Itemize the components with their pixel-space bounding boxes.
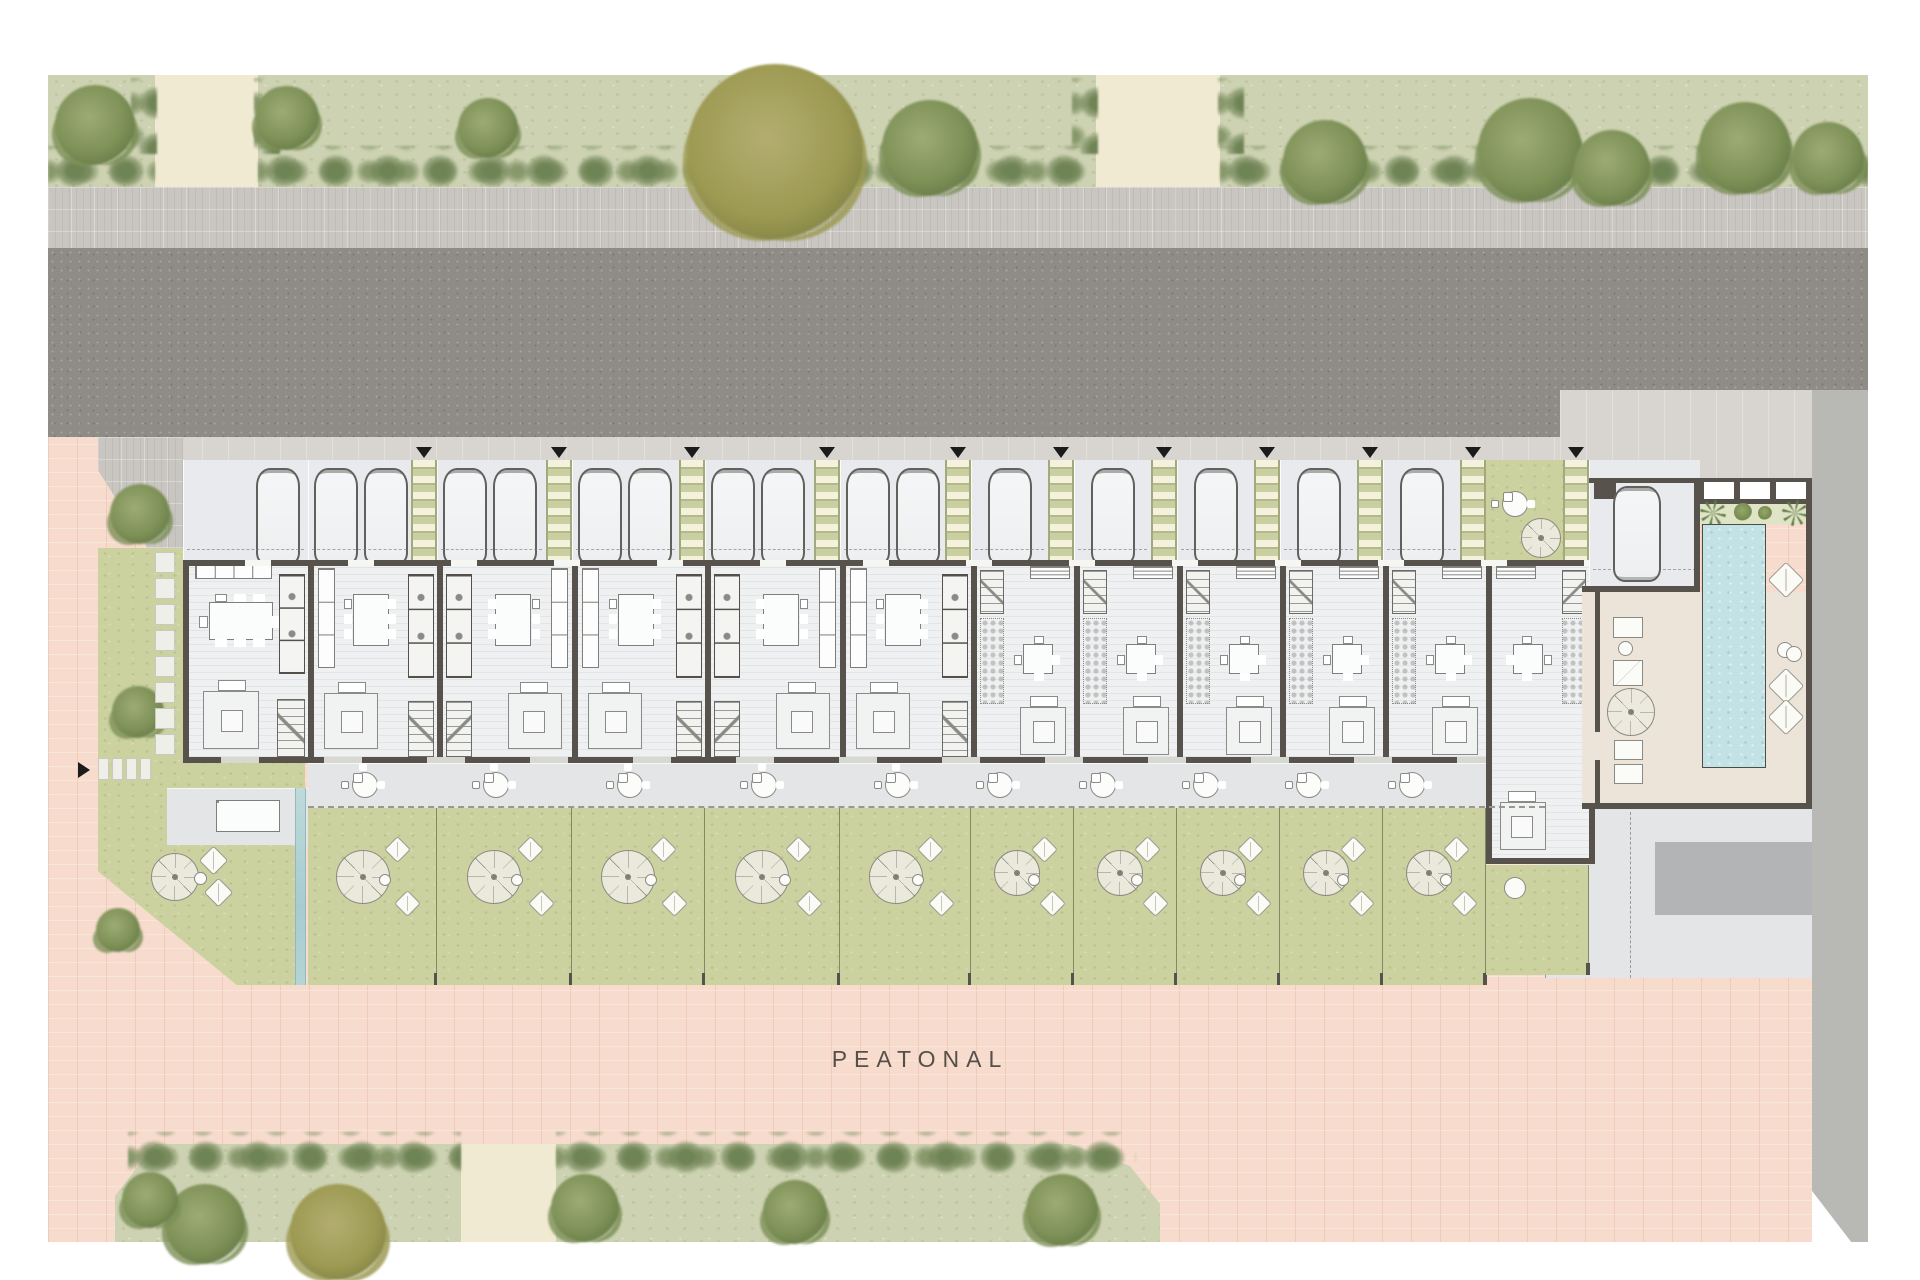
unit-garden bbox=[840, 808, 971, 985]
car-icon bbox=[578, 468, 622, 566]
sofa-icon bbox=[588, 693, 642, 749]
unit-garden bbox=[1177, 808, 1280, 985]
sun-lounger bbox=[1614, 764, 1643, 784]
sofa-icon bbox=[1226, 707, 1272, 755]
kitchen-counter bbox=[1339, 566, 1379, 579]
window-pane bbox=[1776, 482, 1806, 499]
unit-garden bbox=[1280, 808, 1383, 985]
unit-interior bbox=[971, 560, 1074, 763]
chair-icon bbox=[1034, 636, 1044, 644]
parking-bay bbox=[705, 460, 814, 572]
tree-icon bbox=[763, 1180, 827, 1244]
chair-icon bbox=[1137, 636, 1147, 644]
parking-bay bbox=[308, 460, 411, 572]
entry-marker-icon bbox=[1465, 447, 1481, 458]
unit-interior bbox=[1383, 560, 1486, 763]
unit-terrace bbox=[705, 763, 840, 808]
parking-bay bbox=[1383, 460, 1460, 572]
dining-table-icon bbox=[1513, 644, 1543, 674]
palm-icon bbox=[1782, 500, 1808, 526]
bathroom-core bbox=[408, 574, 434, 678]
terrace-table-icon bbox=[1193, 772, 1219, 798]
townhouse-unit bbox=[705, 437, 840, 985]
sun-lounger bbox=[1613, 660, 1643, 686]
unit-garden bbox=[705, 808, 840, 985]
tree-icon bbox=[1792, 122, 1864, 194]
unit-interior bbox=[1177, 560, 1280, 763]
sofa-icon bbox=[324, 693, 378, 749]
dining-table-icon bbox=[1229, 644, 1259, 674]
bathroom-core bbox=[1186, 618, 1210, 704]
shrub-icon bbox=[1734, 503, 1752, 521]
entry-marker-icon bbox=[819, 447, 835, 458]
kitchen-counter bbox=[850, 568, 867, 668]
unit-garden bbox=[572, 808, 705, 985]
deck-chair bbox=[1618, 641, 1633, 656]
south-hedge-row-2 bbox=[556, 1132, 1136, 1178]
tree-icon bbox=[96, 908, 140, 952]
parking-bay bbox=[971, 460, 1048, 572]
stepping-stone bbox=[155, 630, 175, 651]
chair-icon bbox=[1323, 655, 1331, 665]
stairs-icon bbox=[446, 701, 472, 757]
stepping-stone bbox=[98, 758, 109, 780]
chair-icon bbox=[1285, 781, 1293, 789]
north-hedge-gap-edge bbox=[1072, 78, 1098, 154]
dining-table-icon bbox=[1332, 644, 1362, 674]
garden-parasol-icon bbox=[1200, 850, 1246, 896]
north-path-gap-1 bbox=[155, 75, 258, 188]
garden-cushion bbox=[1348, 890, 1375, 917]
stepping-stone bbox=[140, 758, 151, 780]
kitchen-counter bbox=[195, 565, 272, 579]
bathroom-core bbox=[1392, 618, 1416, 704]
unit-interior bbox=[437, 560, 572, 763]
garden-cushion bbox=[650, 836, 677, 863]
parking-bay bbox=[183, 460, 308, 572]
pool-deck-south-wall bbox=[1582, 803, 1812, 809]
garden-cushion bbox=[928, 890, 955, 917]
car-icon bbox=[314, 468, 358, 566]
margin-left bbox=[0, 0, 48, 1280]
pool-deck-west-wall bbox=[1595, 592, 1600, 732]
garden-side-table bbox=[1234, 874, 1246, 886]
stepping-stone bbox=[155, 734, 175, 755]
garden-side-table bbox=[379, 874, 391, 886]
bathroom-core bbox=[714, 574, 740, 678]
car-icon bbox=[1194, 468, 1238, 566]
garden-side-table bbox=[511, 874, 523, 886]
terrace-table-icon bbox=[1296, 772, 1322, 798]
south-path-gap bbox=[461, 1144, 556, 1242]
unit-terrace bbox=[572, 763, 705, 808]
garden-side-table bbox=[779, 874, 791, 886]
chair-icon bbox=[341, 781, 349, 789]
parking-bay bbox=[572, 460, 679, 572]
garden-cushion bbox=[1245, 890, 1272, 917]
unit-garden bbox=[1486, 865, 1589, 975]
stepping-stone bbox=[155, 708, 175, 729]
kitchen-counter bbox=[819, 568, 836, 668]
garden-parasol-icon bbox=[1406, 850, 1452, 896]
stepping-stone bbox=[155, 604, 175, 625]
tree-icon bbox=[1283, 120, 1367, 204]
deck-parasol-icon bbox=[1607, 688, 1655, 736]
entry-marker-icon bbox=[416, 447, 432, 458]
townhouse-unit bbox=[971, 437, 1074, 985]
garden-side-table bbox=[1131, 874, 1143, 886]
sofa-icon bbox=[1432, 707, 1478, 755]
entry-marker-icon bbox=[684, 447, 700, 458]
unit-interior bbox=[840, 560, 971, 763]
chair-icon bbox=[874, 781, 882, 789]
unit-terrace bbox=[1177, 763, 1280, 808]
garden-table-icon bbox=[1502, 491, 1528, 517]
pedestrian-street-label: PEATONAL bbox=[830, 1046, 1010, 1073]
townhouse-unit bbox=[308, 437, 437, 985]
townhouse-unit bbox=[1074, 437, 1177, 985]
tree-icon bbox=[687, 64, 863, 240]
south-hedge-row-1 bbox=[128, 1132, 461, 1178]
tree-icon bbox=[290, 1184, 386, 1280]
unit-garden bbox=[437, 808, 572, 985]
unit-interior bbox=[308, 560, 437, 763]
north-hedge-gap-edge bbox=[1218, 78, 1244, 154]
tree-icon bbox=[55, 85, 135, 165]
tree-icon bbox=[1478, 98, 1582, 202]
sofa-icon bbox=[776, 693, 830, 749]
garden-cushion bbox=[661, 890, 688, 917]
building-south-wall bbox=[183, 757, 1486, 763]
car-icon bbox=[896, 468, 940, 566]
unit-garden bbox=[1074, 808, 1177, 985]
unit12-south-wall bbox=[1486, 858, 1595, 864]
chair-icon bbox=[344, 599, 352, 609]
chair-icon bbox=[1220, 655, 1228, 665]
margin-right bbox=[1868, 0, 1920, 1280]
townhouse-unit bbox=[1177, 437, 1280, 985]
entry-marker-icon bbox=[950, 447, 966, 458]
unit-terrace bbox=[1383, 763, 1486, 808]
stairs-icon bbox=[408, 701, 434, 757]
unit-terrace bbox=[840, 763, 971, 808]
chair-icon bbox=[472, 781, 480, 789]
window-pane bbox=[1740, 482, 1770, 499]
car-icon bbox=[761, 468, 805, 566]
garden-side-table bbox=[1337, 874, 1349, 886]
chair-icon bbox=[1522, 636, 1532, 644]
chair-icon bbox=[199, 616, 208, 628]
car-icon bbox=[711, 468, 755, 566]
dining-table-icon bbox=[1435, 644, 1465, 674]
site-plan-canvas: PEATONAL bbox=[0, 0, 1920, 1280]
margin-bottom bbox=[0, 1242, 1920, 1280]
tree-icon bbox=[1574, 130, 1650, 206]
unit-terrace bbox=[437, 763, 572, 808]
shrub-icon bbox=[1758, 506, 1772, 520]
kitchen-counter bbox=[1496, 566, 1536, 579]
unit-interior bbox=[1280, 560, 1383, 763]
terrace-table-icon bbox=[1399, 772, 1425, 798]
entry-marker-icon bbox=[1362, 447, 1378, 458]
terrace-table-icon bbox=[483, 772, 509, 798]
garden-side-table bbox=[912, 874, 924, 886]
chair-icon bbox=[1388, 781, 1396, 789]
garden-cushion bbox=[1451, 890, 1478, 917]
stepping-stone bbox=[112, 758, 123, 780]
terrace-table-icon bbox=[751, 772, 777, 798]
dining-table-icon bbox=[495, 594, 531, 646]
sofa-icon bbox=[1020, 707, 1066, 755]
garden-parasol-icon bbox=[1097, 850, 1143, 896]
car-icon bbox=[364, 468, 408, 566]
tree-icon bbox=[110, 484, 170, 544]
sun-lounger bbox=[1614, 740, 1643, 760]
unit-interior bbox=[183, 560, 308, 763]
garden-dashed-line bbox=[308, 806, 1545, 808]
kitchen-counter bbox=[1236, 566, 1276, 579]
garden-cushion bbox=[1039, 890, 1066, 917]
tree-icon bbox=[882, 100, 978, 196]
townhouse-unit bbox=[1383, 437, 1486, 985]
stepping-stone bbox=[155, 682, 175, 703]
tree-icon bbox=[1699, 102, 1791, 194]
car-icon bbox=[628, 468, 672, 566]
car-icon bbox=[988, 468, 1032, 566]
chair-icon bbox=[532, 599, 540, 609]
townhouse-unit bbox=[572, 437, 705, 985]
dining-table-icon bbox=[209, 602, 273, 640]
garden-cushion bbox=[517, 836, 544, 863]
unit-terrace bbox=[971, 763, 1074, 808]
stairs-icon bbox=[1392, 570, 1416, 614]
garden-side-table bbox=[1028, 874, 1040, 886]
sofa-icon bbox=[1500, 802, 1546, 850]
window-pane bbox=[1704, 482, 1734, 499]
utility-pad bbox=[1655, 842, 1812, 915]
car-icon bbox=[1091, 468, 1135, 566]
kitchen-counter bbox=[318, 568, 335, 668]
garden-cushion bbox=[917, 836, 944, 863]
bathroom-core bbox=[942, 574, 968, 678]
sofa-icon bbox=[1329, 707, 1375, 755]
sofa-icon bbox=[203, 691, 259, 749]
kitchen-counter bbox=[1442, 566, 1482, 579]
unit-interior bbox=[572, 560, 705, 763]
townhouse-unit bbox=[183, 437, 308, 985]
garden-side-table bbox=[645, 874, 657, 886]
bathroom-core bbox=[446, 574, 472, 678]
tree-icon bbox=[551, 1174, 619, 1242]
car-icon bbox=[256, 468, 300, 566]
swimming-pool bbox=[1702, 524, 1766, 768]
parking-bay bbox=[840, 460, 945, 572]
parking-bay bbox=[1074, 460, 1151, 572]
townhouse-unit bbox=[1486, 437, 1589, 985]
bathroom-core bbox=[980, 618, 1004, 704]
chair-icon bbox=[1117, 655, 1125, 665]
car-icon bbox=[493, 468, 537, 566]
chair-icon bbox=[976, 781, 984, 789]
bathroom-core bbox=[1289, 618, 1313, 704]
parking-bay bbox=[1177, 460, 1254, 572]
entry-marker-icon bbox=[1156, 447, 1172, 458]
kitchen-counter bbox=[1133, 566, 1173, 579]
chair-icon bbox=[1446, 636, 1456, 644]
chair-icon bbox=[1491, 500, 1499, 508]
margin-top bbox=[0, 0, 1920, 75]
unit-interior bbox=[1074, 560, 1177, 763]
stairs-icon bbox=[942, 701, 968, 757]
north-hedge-gap-edge bbox=[131, 78, 157, 154]
townhouse-unit bbox=[840, 437, 971, 985]
terrace-table-icon bbox=[617, 772, 643, 798]
chair-icon bbox=[606, 781, 614, 789]
pool-deck-west-wall bbox=[1595, 760, 1600, 803]
unit-terrace bbox=[308, 763, 437, 808]
entry-marker-icon bbox=[1053, 447, 1069, 458]
unit-garden bbox=[308, 808, 437, 985]
stepping-stone bbox=[155, 552, 175, 573]
kitchen-counter bbox=[582, 568, 599, 668]
garden-cushion bbox=[796, 890, 823, 917]
sofa-icon bbox=[508, 693, 562, 749]
bathroom-core bbox=[1083, 618, 1107, 704]
chair-icon bbox=[1182, 781, 1190, 789]
garden-cushion bbox=[384, 836, 411, 863]
sofa-icon bbox=[856, 693, 910, 749]
kitchen-counter bbox=[551, 568, 568, 668]
stairs-icon bbox=[1289, 570, 1313, 614]
sofa-icon bbox=[1123, 707, 1169, 755]
entry-marker-icon bbox=[1259, 447, 1275, 458]
garden-cushion bbox=[785, 836, 812, 863]
car-icon bbox=[1297, 468, 1341, 566]
stairs-icon bbox=[1186, 570, 1210, 614]
entry-marker-icon bbox=[1568, 447, 1584, 458]
chair-icon bbox=[609, 599, 617, 609]
stairs-icon bbox=[676, 701, 702, 757]
chair-icon bbox=[1014, 655, 1022, 665]
car-icon bbox=[1400, 468, 1444, 566]
pool-enclosure-east-wall bbox=[1806, 478, 1812, 808]
chair-icon bbox=[1240, 636, 1250, 644]
chair-icon bbox=[215, 594, 227, 602]
stepping-stone bbox=[126, 758, 137, 780]
plaza-dashed-boundary bbox=[1630, 812, 1631, 978]
entry-marker-icon bbox=[551, 447, 567, 458]
bathroom-core bbox=[279, 574, 305, 674]
garden-parasol-icon bbox=[994, 850, 1040, 896]
chair-icon bbox=[1426, 655, 1434, 665]
unit-terrace bbox=[1280, 763, 1383, 808]
bathroom-core bbox=[676, 574, 702, 678]
kitchen-counter bbox=[1030, 566, 1070, 579]
unit-garden bbox=[971, 808, 1074, 985]
palm-icon bbox=[1700, 500, 1726, 526]
garden-parasol-icon bbox=[1303, 850, 1349, 896]
tree-icon bbox=[122, 1172, 178, 1228]
communal-entry-garden bbox=[1486, 460, 1563, 572]
dining-table-icon bbox=[1023, 644, 1053, 674]
dining-table-icon bbox=[885, 594, 921, 646]
car-icon bbox=[443, 468, 487, 566]
unit-interior bbox=[1486, 560, 1589, 858]
townhouse-unit bbox=[1280, 437, 1383, 985]
garden-cushion bbox=[528, 890, 555, 917]
car-icon bbox=[1613, 486, 1661, 582]
stepping-stone bbox=[155, 578, 175, 599]
terrace-table-icon bbox=[885, 772, 911, 798]
tree-icon bbox=[1026, 1174, 1098, 1246]
garden-cushion bbox=[394, 890, 421, 917]
deck-table bbox=[1613, 617, 1643, 638]
stairs-icon bbox=[714, 701, 740, 757]
dining-table-icon bbox=[1126, 644, 1156, 674]
townhouse-unit bbox=[437, 437, 572, 985]
garden-side-table bbox=[1440, 874, 1452, 886]
stairs-icon bbox=[277, 699, 305, 757]
garden-side-table bbox=[1504, 877, 1526, 899]
dining-table-icon bbox=[763, 594, 799, 646]
chair-icon bbox=[1079, 781, 1087, 789]
chair-icon bbox=[740, 781, 748, 789]
building-north-wall bbox=[183, 560, 1589, 566]
stairs-icon bbox=[980, 570, 1004, 614]
unit-terrace bbox=[1074, 763, 1177, 808]
parking-bay bbox=[437, 460, 546, 572]
tree-icon bbox=[458, 98, 518, 158]
east-sidewalk-strip bbox=[1812, 390, 1868, 1242]
chair-icon bbox=[876, 599, 884, 609]
chair-icon bbox=[1343, 636, 1353, 644]
chair-icon bbox=[800, 599, 808, 609]
terrace-table-icon bbox=[352, 772, 378, 798]
terrace-table-icon bbox=[987, 772, 1013, 798]
terrace-table-icon bbox=[1090, 772, 1116, 798]
unit-interior bbox=[705, 560, 840, 763]
garden-cushion bbox=[1142, 890, 1169, 917]
dining-table-icon bbox=[353, 594, 389, 646]
car-icon bbox=[846, 468, 890, 566]
parking-bay bbox=[1280, 460, 1357, 572]
north-path-gap-2 bbox=[1096, 75, 1220, 188]
guest-parking-storage bbox=[1594, 483, 1616, 499]
deck-side-table bbox=[1786, 646, 1802, 662]
unit-garden bbox=[1383, 808, 1486, 985]
pedestrian-entry-arrow-icon bbox=[78, 762, 90, 778]
stairs-icon bbox=[1083, 570, 1107, 614]
dining-table-icon bbox=[618, 594, 654, 646]
chair-icon bbox=[1544, 655, 1552, 665]
garden-parasol-icon bbox=[1521, 518, 1561, 558]
stepping-stone bbox=[155, 656, 175, 677]
tree-icon bbox=[255, 86, 319, 150]
